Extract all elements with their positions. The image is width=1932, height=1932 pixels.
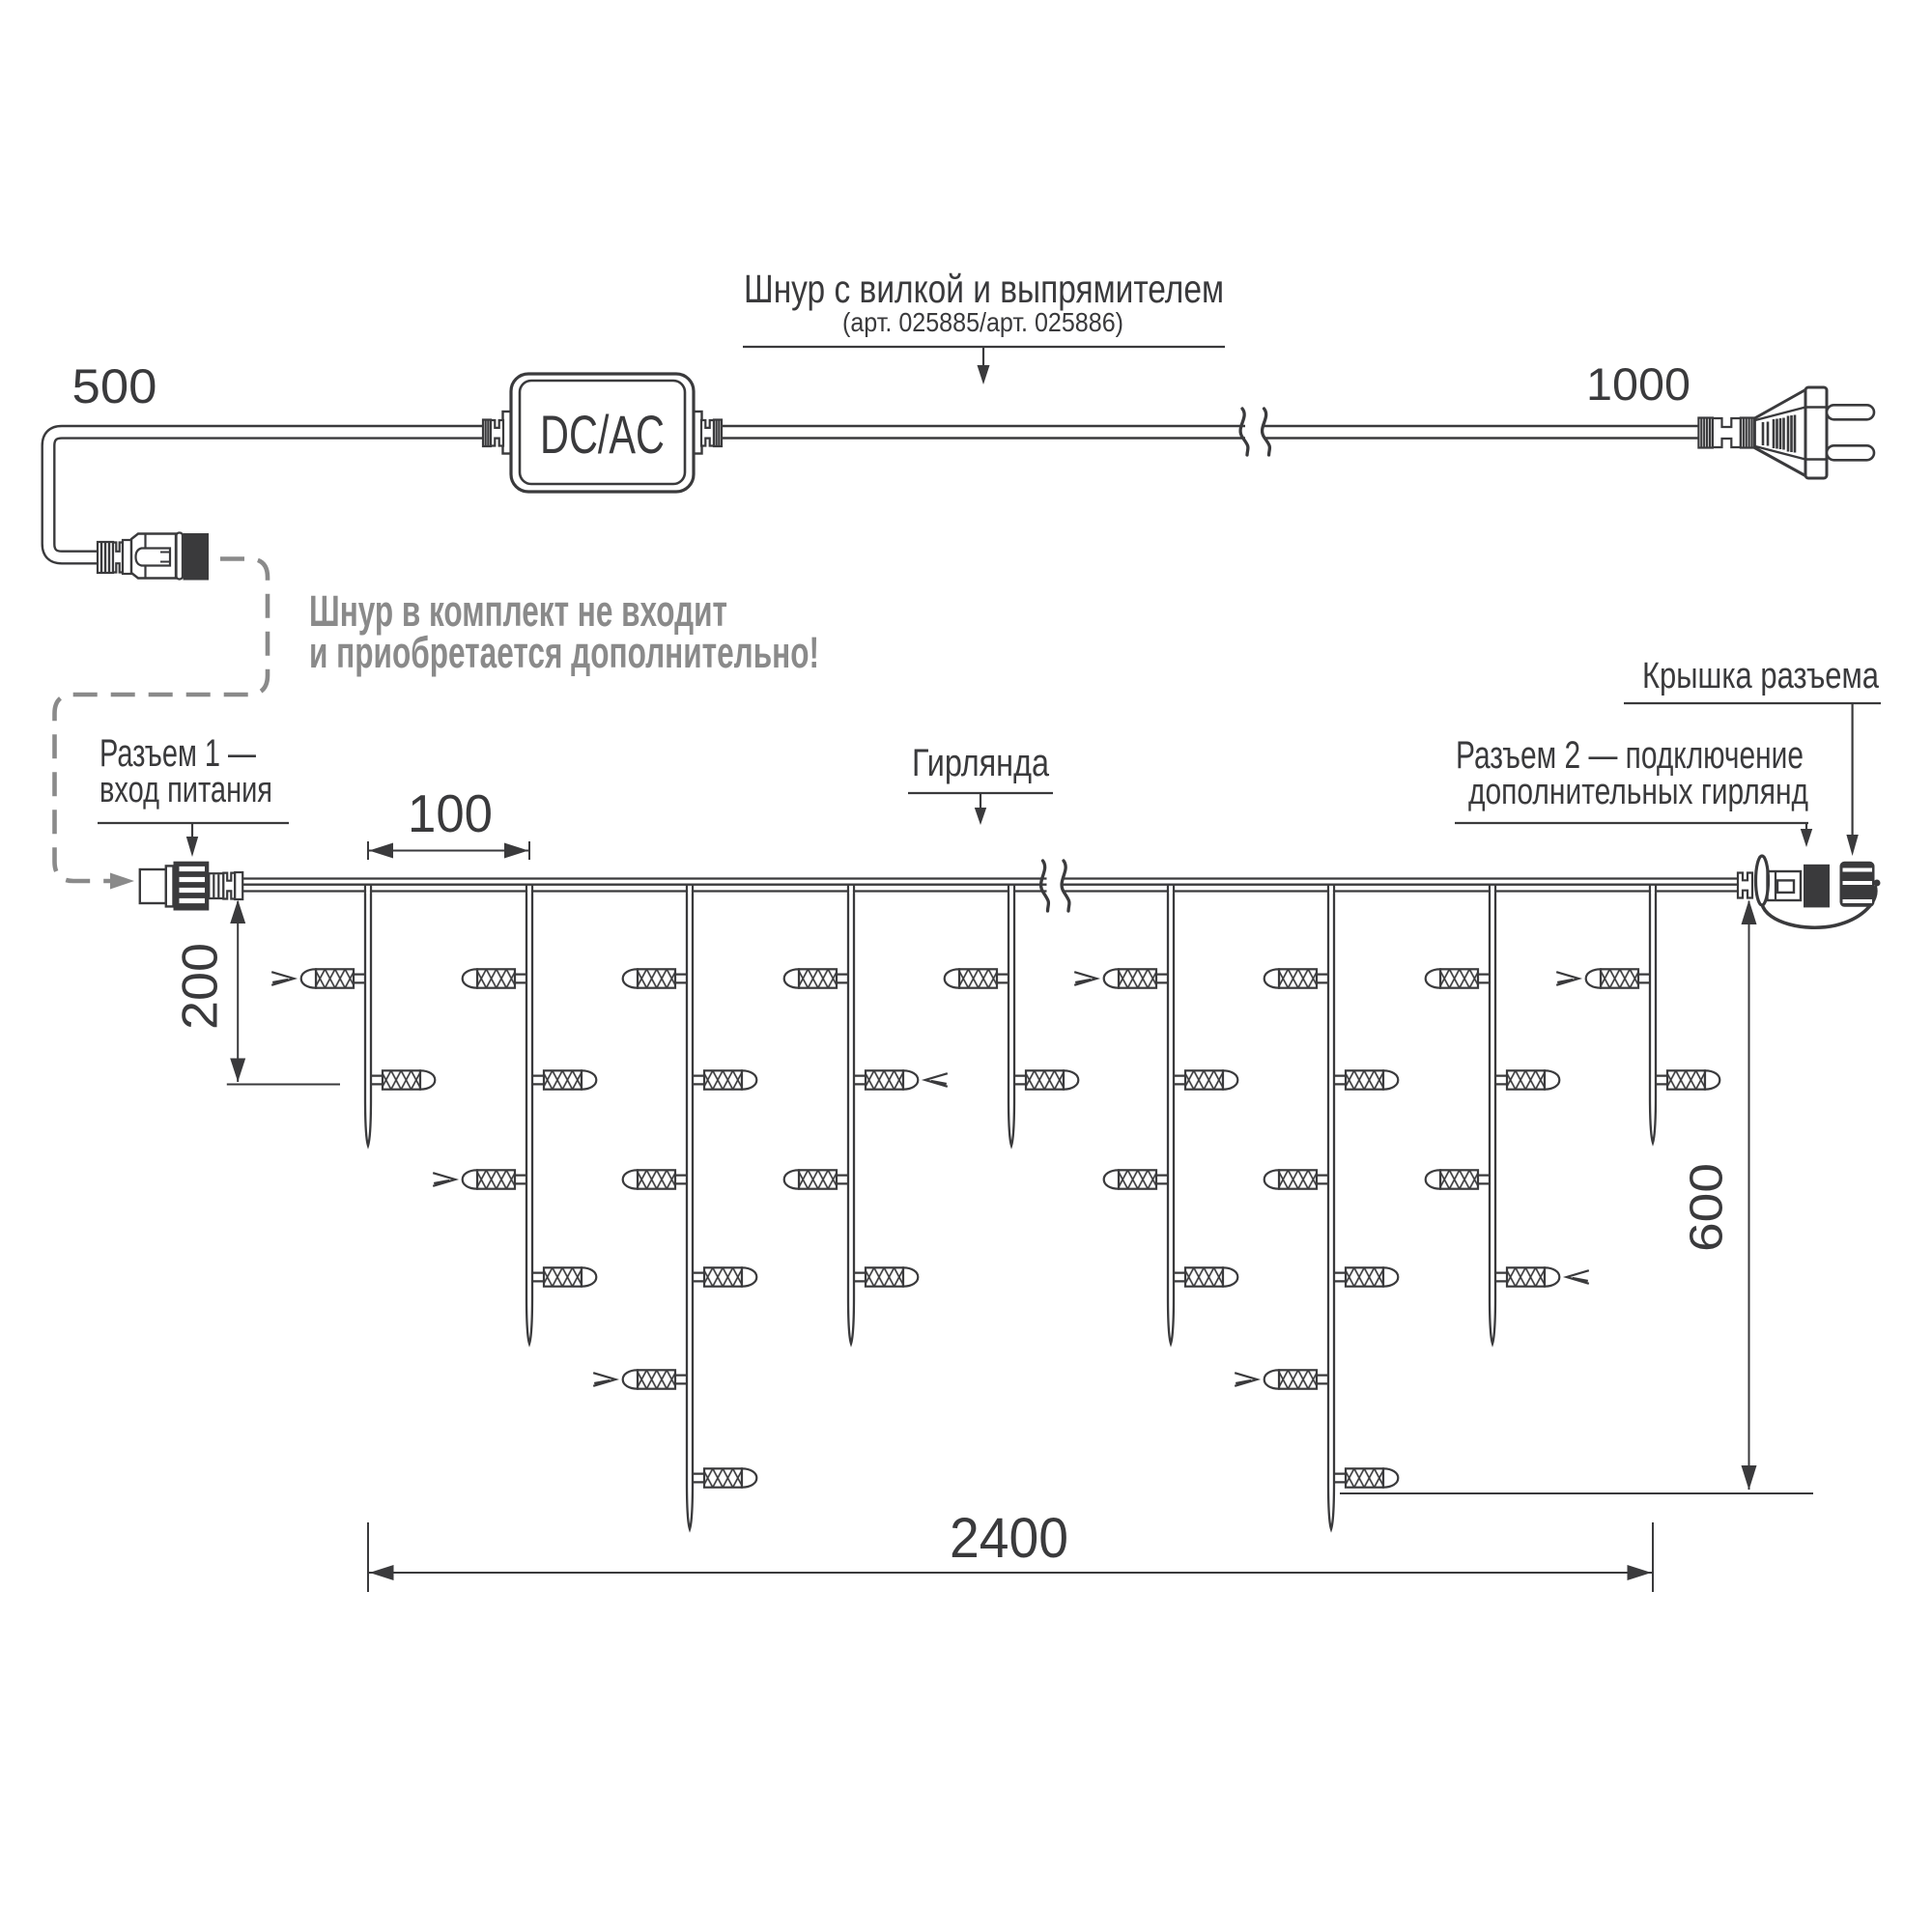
svg-text:2400: 2400 — [950, 1507, 1068, 1570]
svg-text:Крышка разъема: Крышка разъема — [1642, 656, 1880, 696]
svg-text:Шнур с вилкой и выпрямителем: Шнур с вилкой и выпрямителем — [744, 267, 1224, 311]
svg-text:Разъем 2 — подключение: Разъем 2 — подключение — [1456, 734, 1804, 777]
svg-text:(арт. 025885/арт. 025886): (арт. 025885/арт. 025886) — [842, 307, 1123, 337]
svg-text:и приобретается дополнительно!: и приобретается дополнительно! — [309, 628, 819, 677]
svg-text:Гирлянда: Гирлянда — [912, 742, 1050, 784]
svg-text:DC/AC: DC/AC — [540, 404, 665, 465]
svg-text:100: 100 — [408, 783, 493, 843]
svg-text:600: 600 — [1682, 1163, 1733, 1252]
svg-text:200: 200 — [173, 943, 229, 1030]
svg-text:1000: 1000 — [1586, 358, 1690, 410]
svg-text:Разъем 1 —: Разъем 1 — — [99, 732, 256, 775]
svg-text:вход питания: вход питания — [99, 770, 272, 810]
svg-text:500: 500 — [72, 359, 157, 413]
svg-text:дополнительных гирлянд: дополнительных гирлянд — [1468, 772, 1808, 812]
